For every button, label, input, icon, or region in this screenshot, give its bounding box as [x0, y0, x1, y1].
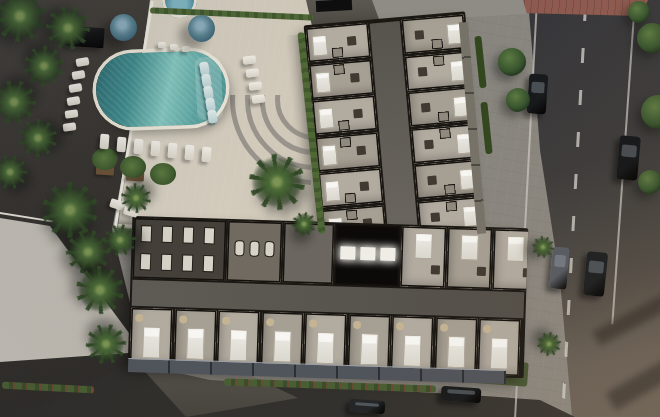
lounge-chair — [116, 137, 126, 153]
spa-lounger — [265, 242, 273, 256]
rug — [222, 317, 230, 325]
gym-equipment — [163, 227, 172, 242]
rug — [309, 319, 317, 327]
bed — [272, 330, 291, 363]
car-windshield — [621, 144, 636, 158]
table — [356, 145, 366, 155]
planter-shrub — [120, 156, 146, 178]
bed — [316, 332, 335, 365]
bathroom — [333, 64, 345, 75]
table — [415, 30, 425, 40]
gym-equipment — [162, 255, 171, 270]
bed — [321, 144, 338, 166]
bathroom — [340, 136, 352, 147]
aerial-render — [0, 0, 660, 417]
apartment-unit — [130, 308, 173, 365]
tree-icon — [498, 48, 526, 76]
palm-tree-icon — [534, 329, 563, 358]
apartment-unit — [405, 51, 470, 90]
bathroom — [346, 209, 358, 220]
elevator-cab-light — [340, 246, 355, 259]
rug — [135, 314, 143, 322]
lounge-chair — [243, 55, 257, 64]
car-windshield — [447, 389, 474, 395]
car-windshield — [531, 82, 545, 94]
apartment-unit — [217, 311, 260, 368]
vehicle-sedan — [441, 386, 482, 404]
rug — [353, 321, 361, 329]
bed — [403, 334, 422, 367]
lounge-chair — [133, 139, 143, 155]
tree-icon — [637, 23, 660, 53]
tree-icon — [506, 88, 530, 112]
table — [424, 139, 434, 149]
rug — [396, 322, 404, 330]
spa-lounger — [235, 241, 243, 255]
bed — [506, 236, 525, 263]
gym-equipment — [184, 227, 193, 242]
apartment-unit — [391, 316, 434, 373]
apartment-unit — [408, 87, 473, 126]
vehicle-sedan — [527, 73, 549, 114]
apartment-unit — [492, 229, 528, 290]
roof-skylight — [316, 0, 353, 12]
planter-shrub — [150, 163, 176, 185]
bed — [490, 337, 509, 370]
bottom-wing-floorplan — [128, 216, 529, 378]
table — [418, 66, 428, 76]
right-wing-floorplan — [304, 11, 485, 246]
table — [353, 109, 363, 119]
apartment-unit — [446, 228, 492, 289]
gym-equipment — [141, 254, 150, 269]
bed — [142, 326, 161, 359]
bed — [414, 233, 433, 260]
bathroom — [344, 193, 356, 204]
apartment-unit — [400, 226, 446, 287]
lounge-chair — [182, 46, 190, 52]
rug — [179, 315, 187, 323]
bathroom — [332, 47, 344, 58]
gym-equipment — [205, 228, 214, 243]
car-windshield — [554, 255, 567, 268]
rug — [266, 318, 274, 326]
tree-icon — [638, 170, 660, 194]
bathroom — [438, 111, 450, 122]
gym-equipment — [183, 255, 192, 270]
lounge-chair — [246, 68, 260, 77]
hedge-planter — [480, 102, 492, 154]
table — [477, 267, 486, 276]
apartment-unit — [173, 309, 216, 366]
hedge-planter — [474, 36, 486, 88]
bathroom — [433, 55, 445, 66]
table — [347, 36, 357, 46]
rug — [439, 324, 447, 332]
apartment-unit — [304, 313, 347, 370]
apartment-unit — [478, 319, 521, 376]
lounge-chair — [249, 81, 263, 90]
bed — [318, 107, 335, 129]
bathroom — [338, 120, 350, 131]
vehicle-sedan — [616, 135, 641, 181]
vehicle-sedan — [349, 399, 386, 414]
table — [360, 181, 370, 191]
lounge-chair — [167, 143, 177, 159]
apartment-unit — [411, 124, 476, 163]
apartment-unit — [414, 160, 479, 199]
gym-equipment — [204, 256, 213, 271]
bed — [315, 71, 332, 93]
table — [431, 265, 440, 274]
car-windshield — [355, 402, 380, 407]
bed — [185, 328, 204, 361]
elevator-core — [334, 224, 400, 286]
table — [427, 175, 437, 185]
spa-lounger — [250, 242, 258, 256]
apartment-unit — [309, 59, 374, 98]
lounge-chair — [184, 145, 194, 161]
rug — [483, 325, 491, 333]
gym-equipment — [142, 226, 151, 241]
bed — [446, 336, 465, 369]
lounge-chair — [158, 42, 166, 48]
spa-room — [226, 221, 282, 283]
lounge-chair — [99, 134, 109, 150]
apartment-unit — [402, 15, 467, 54]
apartment-unit — [312, 96, 377, 135]
bathroom — [445, 200, 457, 211]
bed — [359, 333, 378, 366]
bathroom — [439, 128, 451, 139]
tree-icon — [628, 1, 650, 23]
table — [350, 72, 360, 82]
bathroom — [431, 38, 443, 49]
right-street — [520, 0, 660, 417]
bed — [229, 329, 248, 362]
bed — [324, 180, 341, 202]
bed — [312, 35, 329, 57]
pool-umbrella-icon — [110, 14, 137, 41]
lounge-chair — [201, 147, 211, 163]
pool-umbrella-icon — [188, 15, 215, 42]
apartment-unit — [434, 317, 477, 374]
car-windshield — [588, 260, 603, 274]
planter-shrub — [92, 148, 118, 170]
lounge-chair — [150, 141, 160, 157]
bathroom — [444, 184, 456, 195]
elevator-cab-light — [360, 247, 375, 260]
bed — [460, 234, 479, 261]
table — [523, 268, 529, 277]
table — [421, 103, 431, 113]
apartment-unit — [319, 168, 384, 207]
apartment-unit — [315, 132, 380, 171]
lounge-chair — [170, 44, 178, 50]
apartment-unit — [347, 315, 390, 372]
apartment-unit — [306, 23, 371, 62]
elevator-cab-light — [380, 248, 395, 261]
gym — [133, 218, 227, 281]
lounge-chair — [252, 94, 266, 103]
table — [430, 212, 440, 222]
apartment-unit — [260, 312, 303, 369]
